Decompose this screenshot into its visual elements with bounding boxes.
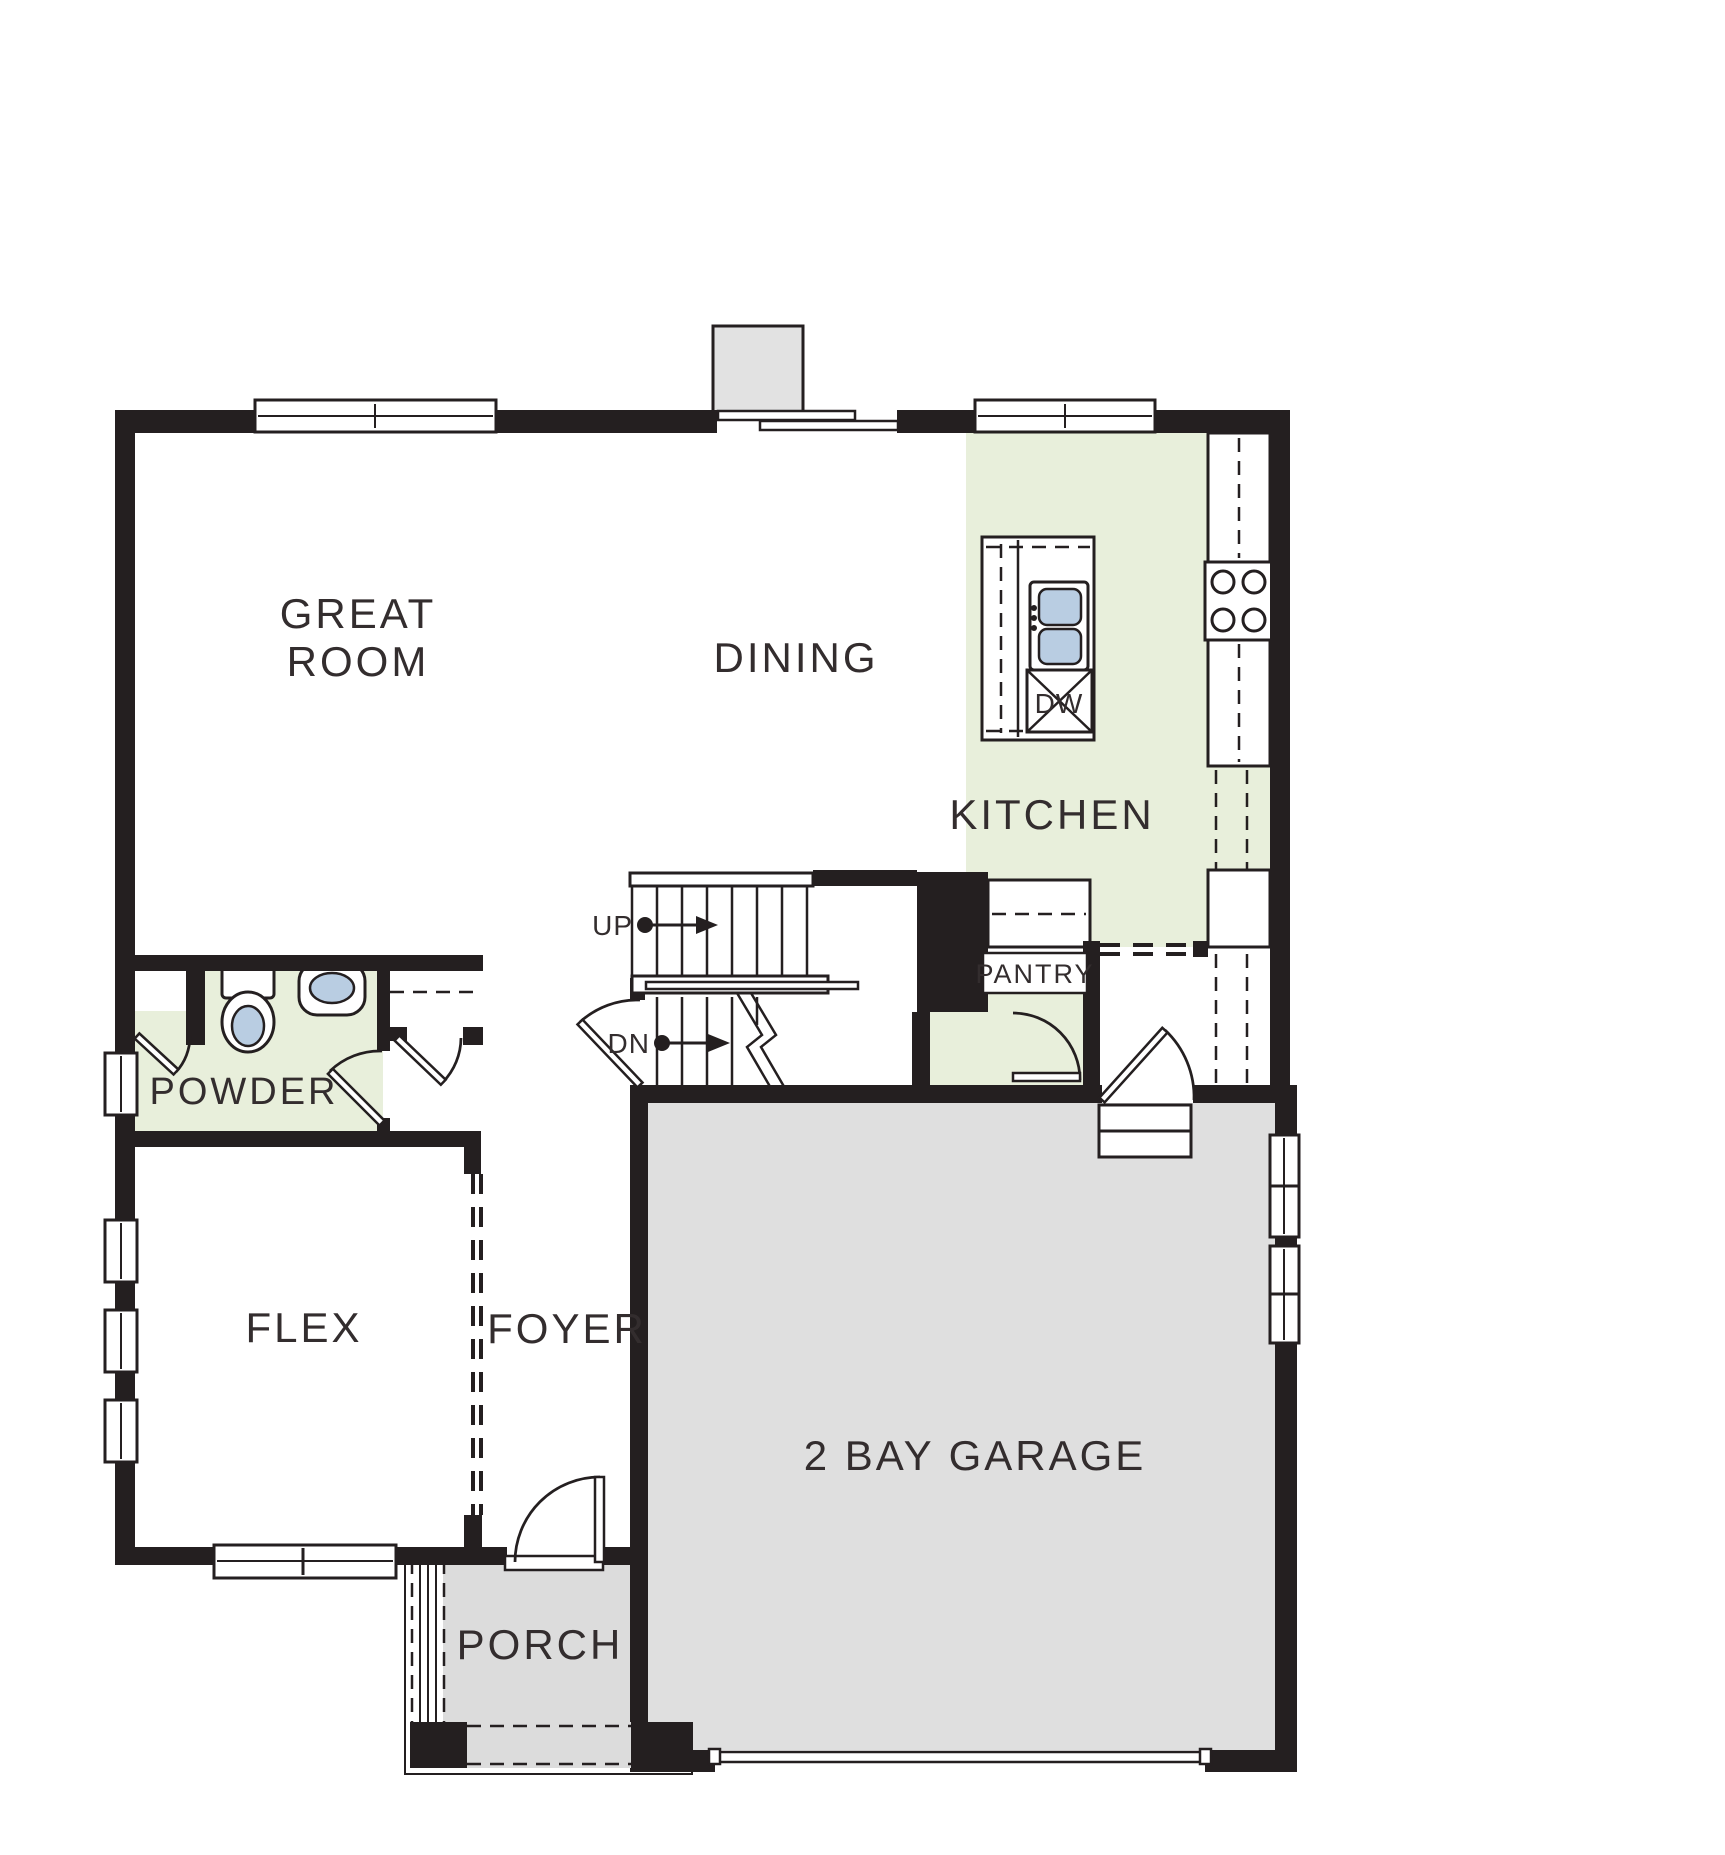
window-flex-2: [105, 1310, 137, 1372]
up-label: UP: [592, 910, 633, 941]
stair-handrail: [632, 976, 858, 993]
floor-plan: DW: [0, 0, 1725, 1855]
window-garage-1: [1270, 1135, 1299, 1237]
window-kitchen: [975, 400, 1155, 432]
sliding-door-dining: [718, 411, 898, 430]
refrigerator-alcove: [1208, 870, 1270, 947]
powder-label: POWDER: [150, 1071, 339, 1113]
porch-column-left: [410, 1722, 467, 1768]
island-sink-icon: [1030, 582, 1088, 670]
dn-label: DN: [608, 1028, 650, 1059]
window-powder: [105, 1053, 137, 1115]
south-counter: [988, 880, 1090, 947]
porch-column-right: [631, 1722, 692, 1768]
porch-step: [467, 1722, 631, 1768]
toilet-icon: [222, 966, 274, 1052]
garage-entry-door: [1099, 1028, 1194, 1157]
cased-opening-flex-foyer: [473, 1174, 481, 1515]
kitchen-island: DW: [982, 537, 1094, 740]
porch-label: PORCH: [457, 1621, 624, 1668]
dishwasher-label: DW: [1035, 688, 1084, 719]
cased-opening-kitchen-mudroom: [1100, 945, 1193, 954]
window-flex-front: [214, 1545, 396, 1578]
garage-step-2: [1099, 1131, 1191, 1157]
stair-down-marker: DN: [608, 1028, 730, 1059]
cooktop-icon: [1205, 562, 1272, 640]
dining-label: DINING: [714, 634, 879, 681]
foyer-label: FOYER: [487, 1305, 647, 1352]
floor-plan-canvas: DW: [0, 0, 1725, 1855]
garage-floor: [648, 1103, 1275, 1750]
kitchen-label: KITCHEN: [949, 791, 1154, 838]
great-room-label-line2: ROOM: [287, 638, 430, 685]
window-great-room: [255, 400, 496, 432]
coat-closet-door: [395, 1035, 461, 1084]
great-room-label-line1: GREAT: [280, 590, 437, 637]
chimney: [713, 326, 803, 413]
garage-overhead-door: [709, 1749, 1211, 1764]
front-door: [505, 1477, 604, 1570]
dishwasher-icon: DW: [1027, 670, 1092, 732]
pantry-label-box: PANTRY: [975, 953, 1094, 993]
stairs-up-flight: [632, 886, 807, 975]
stair-landing-edge: [630, 873, 813, 886]
flex-label: FLEX: [245, 1304, 362, 1351]
garage-step-1: [1099, 1105, 1191, 1131]
window-flex-3: [105, 1400, 137, 1462]
garage-label: 2 BAY GARAGE: [804, 1432, 1147, 1479]
pantry-label: PANTRY: [975, 959, 1094, 989]
stair-up-marker: UP: [592, 910, 718, 941]
window-garage-2: [1270, 1246, 1299, 1343]
window-flex-1: [105, 1220, 137, 1282]
